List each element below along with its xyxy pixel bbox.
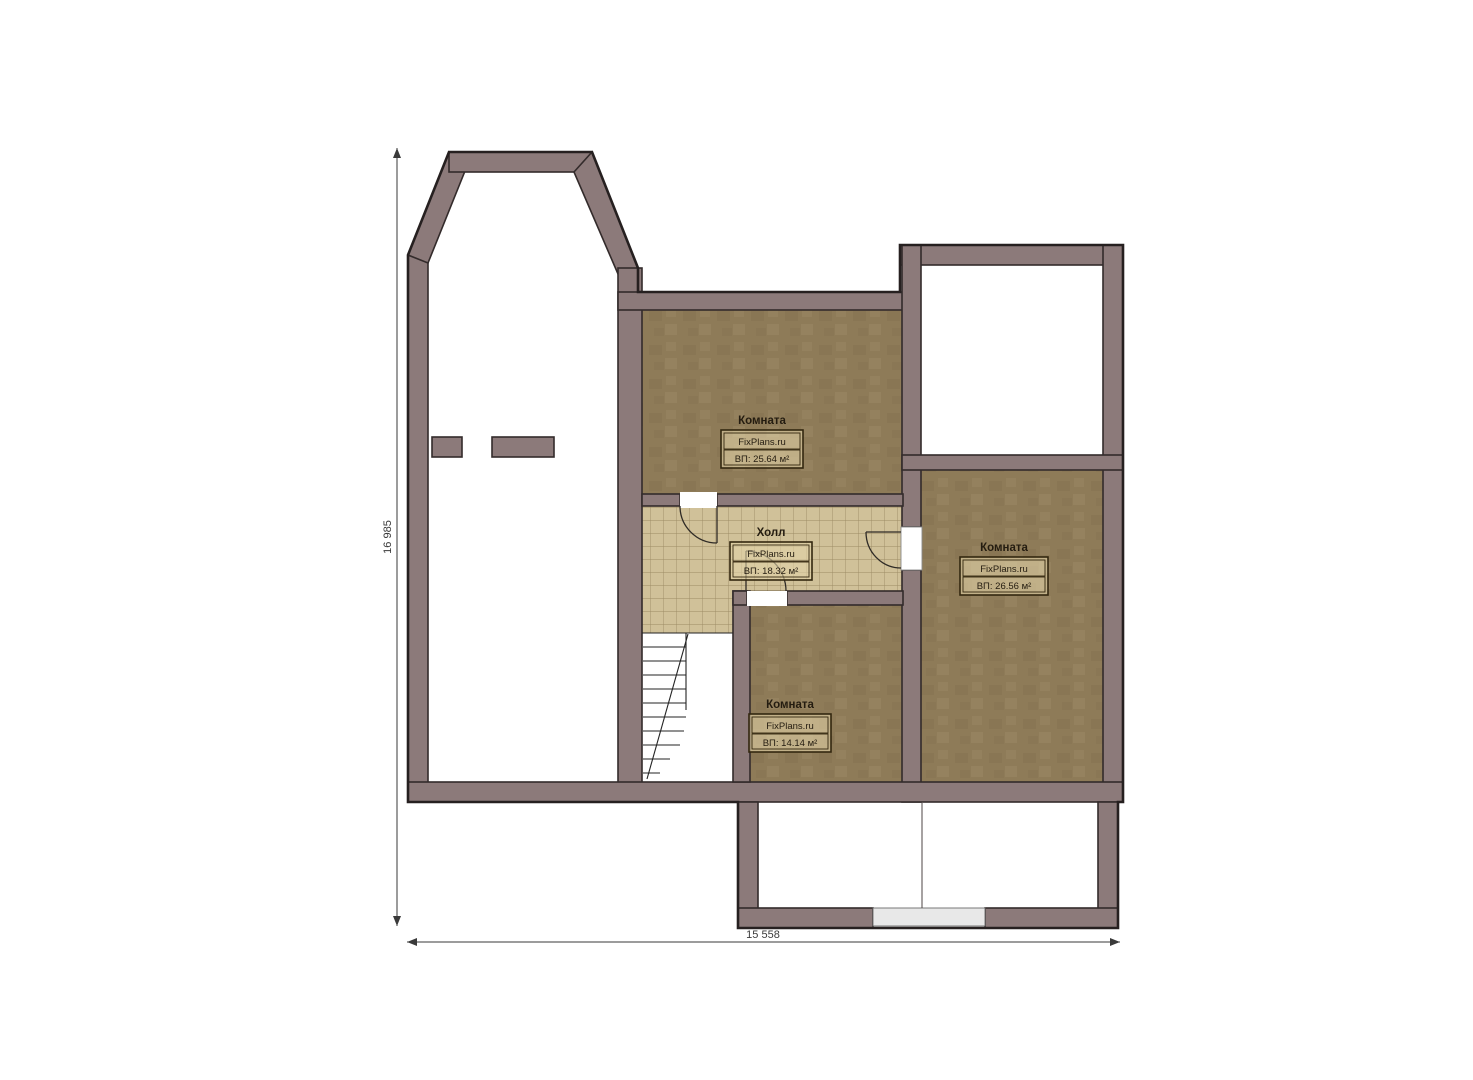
- wall-main-top: [618, 292, 903, 310]
- room-area: ВП: 26.56 м²: [977, 581, 1032, 592]
- floor-plan-page: Комната FixPlans.ru ВП: 25.64 м² Холл Fi…: [0, 0, 1473, 1080]
- wall-ext-bottom-b: [985, 908, 1118, 928]
- room-bottom-floor: [750, 605, 903, 782]
- room-area: ВП: 14.14 м²: [763, 738, 818, 749]
- wall-bottomroom-top-b: [787, 591, 903, 605]
- dim-arrow-right: [1110, 938, 1120, 946]
- room-title: Комната: [980, 542, 1028, 554]
- wall-divider-upper: [902, 245, 921, 527]
- room-brand: FixPlans.ru: [747, 549, 795, 560]
- wall-main-left: [618, 268, 642, 802]
- wall-hall-north-a: [642, 494, 680, 506]
- dim-arrow-down: [393, 916, 401, 926]
- wall-stub-long: [492, 437, 554, 457]
- dim-arrow-up: [393, 148, 401, 158]
- room-brand: FixPlans.ru: [980, 564, 1028, 575]
- dimension-bottom: 15 558: [407, 929, 1120, 946]
- wall-tower-left: [408, 255, 428, 802]
- floor-plan: Комната FixPlans.ru ВП: 25.64 м² Холл Fi…: [0, 0, 1473, 1080]
- wall-hall-north-b: [717, 494, 903, 506]
- room-area: ВП: 18.32 м²: [744, 566, 799, 577]
- dimension-left-value: 16 985: [382, 520, 394, 554]
- wall-bottomroom-top-a: [733, 591, 747, 605]
- dimension-left: 16 985: [382, 148, 401, 926]
- stairwell-floor: [642, 633, 733, 782]
- room-white-floor: [921, 265, 1103, 455]
- wall-ext-bottom-a: [738, 908, 873, 928]
- wall-stub-small: [432, 437, 462, 457]
- room-title: Комната: [738, 415, 786, 427]
- wall-tower-top: [449, 152, 592, 172]
- room-brand: FixPlans.ru: [766, 721, 814, 732]
- room-title: Комната: [766, 699, 814, 711]
- door-gap-bottom-room: [747, 591, 787, 606]
- door-gap-top-room: [680, 492, 717, 508]
- wall-bottomroom-left: [733, 591, 750, 782]
- room-area: ВП: 25.64 м²: [735, 454, 790, 465]
- room-right-floor: [921, 470, 1103, 782]
- wall-divider-lower: [902, 570, 921, 802]
- room-brand: FixPlans.ru: [738, 437, 786, 448]
- door-gap-right-room: [901, 527, 922, 570]
- wall-block-top: [900, 245, 1123, 265]
- dimension-bottom-value: 15 558: [746, 929, 780, 941]
- extension-entry-door: [873, 908, 985, 926]
- dim-arrow-left: [407, 938, 417, 946]
- wall-bottom: [408, 782, 1123, 802]
- extension-floor: [758, 802, 1098, 908]
- room-title: Холл: [757, 527, 786, 539]
- tower-interior: [428, 172, 618, 780]
- wall-main-right: [1103, 245, 1123, 802]
- wall-mid-horizontal: [902, 455, 1123, 470]
